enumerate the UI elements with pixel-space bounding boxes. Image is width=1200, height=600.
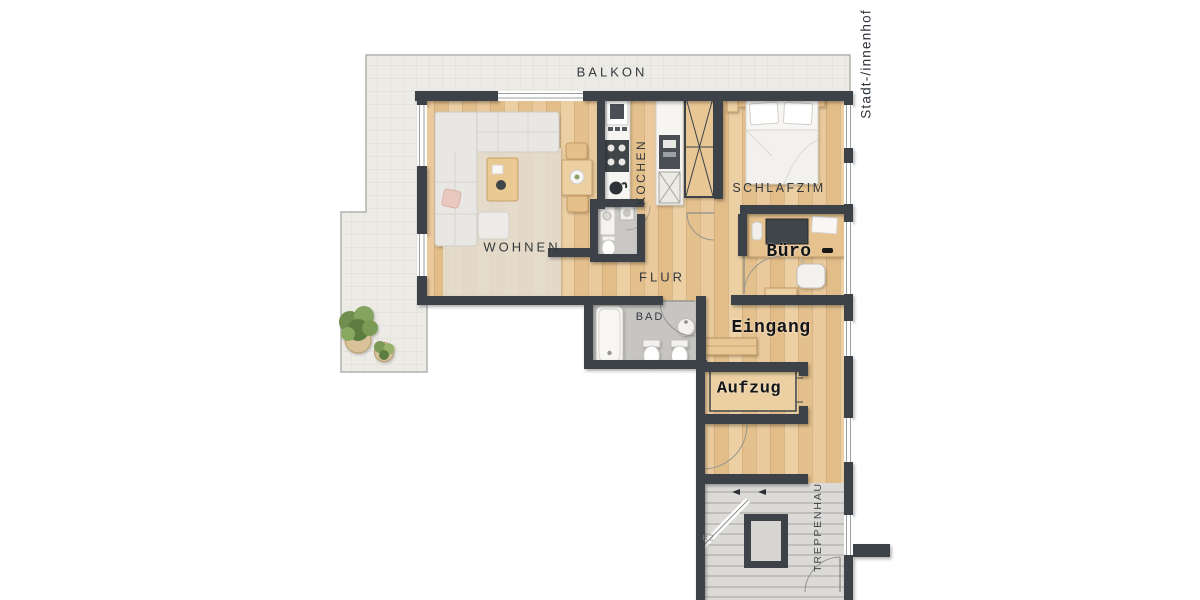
kitchen-counter (604, 95, 630, 205)
entry-furniture (704, 338, 757, 355)
coffee-table (487, 158, 518, 201)
papers (811, 216, 837, 234)
bathtub (596, 306, 623, 364)
office-chair (797, 264, 825, 288)
stove (605, 140, 629, 172)
stair-core (744, 514, 788, 568)
pillow (749, 102, 778, 125)
plant-small (374, 341, 395, 362)
sofa-pillow (441, 189, 461, 209)
duvet (746, 130, 818, 184)
pillow (783, 102, 812, 124)
wc-toilet (602, 240, 615, 256)
ottoman (478, 212, 509, 239)
elevator-car (710, 368, 803, 411)
oven (610, 104, 624, 119)
dining-set (562, 143, 592, 212)
wc-basin (600, 207, 615, 235)
floor-plan: BALKON Stadt-/innenhof WOHNEN KOCHEN SCH… (0, 0, 1200, 600)
stamp-dash (822, 248, 833, 253)
floor-landing (703, 415, 848, 483)
floor-plan-graphic (0, 0, 1200, 600)
window-balcony (498, 91, 583, 101)
kitchen-sink (610, 182, 623, 195)
monitor (766, 219, 808, 244)
wardrobe (685, 97, 714, 197)
kitchen-tall-unit (656, 97, 683, 205)
desk-lamp (752, 222, 762, 240)
bed (746, 100, 818, 184)
